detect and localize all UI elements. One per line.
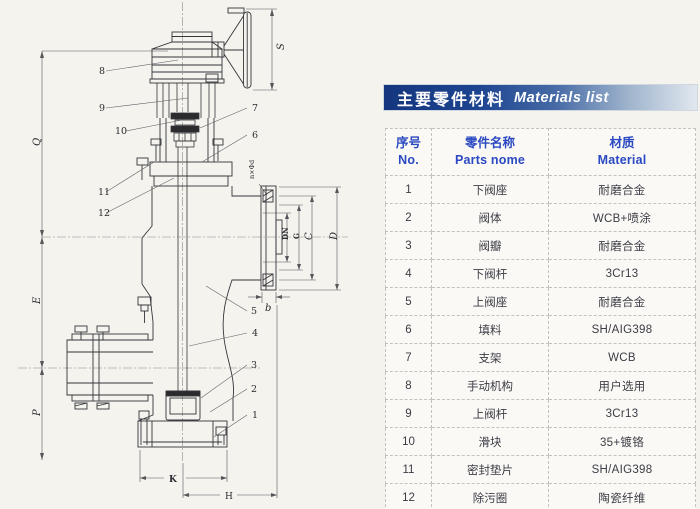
cell-part: 上阀座 [432, 288, 549, 316]
section-title-zh: 主要零件材料 [397, 86, 505, 110]
cell-material: 耐磨合金 [549, 232, 696, 260]
cell-no: 12 [386, 484, 432, 509]
cell-no: 3 [386, 232, 432, 260]
header-no-en: No. [386, 152, 431, 169]
dim-Q: Q [32, 138, 43, 146]
table-row: 6填料SH/AIG398 [386, 316, 696, 344]
cell-no: 4 [386, 260, 432, 288]
cell-part: 下阀杆 [432, 260, 549, 288]
cell-material: SH/AIG398 [549, 316, 696, 344]
cell-material: WCB+喷涂 [549, 204, 696, 232]
callout-7: 7 [252, 103, 258, 114]
dim-S: S [276, 43, 287, 50]
header-no-zh: 序号 [386, 135, 431, 152]
dim-G: G [292, 233, 301, 239]
table-row: 9上阀杆3Cr13 [386, 400, 696, 428]
valve-body-drawing [138, 186, 282, 421]
cell-no: 6 [386, 316, 432, 344]
callout-12: 12 [98, 208, 110, 219]
header-part-en: Parts nome [432, 152, 548, 169]
callout-9: 9 [99, 103, 105, 114]
header-no: 序号 No. [386, 129, 432, 176]
cell-part: 填料 [432, 316, 549, 344]
cell-material: SH/AIG398 [549, 456, 696, 484]
valve-technical-drawing: 8 9 10 11 12 7 6 5 4 3 2 1 Q E P S DN G … [0, 0, 380, 509]
dimension-lines [42, 9, 341, 498]
cell-part: 下阀座 [432, 176, 549, 204]
cell-part: 阀体 [432, 204, 549, 232]
cell-material: 耐磨合金 [549, 288, 696, 316]
cell-part: 手动机构 [432, 372, 549, 400]
dimension-labels: Q E P S DN G C D b K H n×Φd [32, 43, 340, 502]
cell-part: 滑块 [432, 428, 549, 456]
actuator-housing-drawing [150, 32, 224, 83]
cell-material: 陶瓷纤维 [549, 484, 696, 509]
dim-H: H [225, 492, 233, 502]
table-row: 4下阀杆3Cr13 [386, 260, 696, 288]
dim-D: D [329, 232, 340, 241]
header-part: 零件名称 Parts nome [432, 129, 549, 176]
section-title-bar: 主要零件材料 Materials list [383, 84, 698, 111]
dim-DN: DN [281, 227, 290, 240]
left-branch-drawing [67, 326, 153, 421]
cell-part: 阀瓣 [432, 232, 549, 260]
dimension-arrowheads [40, 9, 339, 497]
table-row: 7支架WCB [386, 344, 696, 372]
dim-P: P [32, 409, 43, 417]
catalog-page: 8 9 10 11 12 7 6 5 4 3 2 1 Q E P S DN G … [0, 0, 700, 509]
table-row: 11密封垫片SH/AIG398 [386, 456, 696, 484]
cell-part: 支架 [432, 344, 549, 372]
callout-6: 6 [252, 130, 258, 141]
cell-no: 11 [386, 456, 432, 484]
cell-material: 3Cr13 [549, 400, 696, 428]
table-row: 3阀瓣耐磨合金 [386, 232, 696, 260]
callout-11: 11 [98, 187, 110, 198]
table-row: 5上阀座耐磨合金 [386, 288, 696, 316]
cell-material: 3Cr13 [549, 260, 696, 288]
section-title-en: Materials list [514, 90, 609, 106]
header-part-zh: 零件名称 [432, 135, 548, 152]
callout-8: 8 [99, 66, 105, 77]
cell-part: 密封垫片 [432, 456, 549, 484]
dim-b: b [265, 303, 271, 314]
table-header-row: 序号 No. 零件名称 Parts nome 材质 Material [386, 129, 696, 176]
cell-material: 耐磨合金 [549, 176, 696, 204]
cell-no: 7 [386, 344, 432, 372]
callout-4: 4 [252, 328, 258, 339]
cell-no: 8 [386, 372, 432, 400]
table-row: 1下阀座耐磨合金 [386, 176, 696, 204]
callout-2: 2 [251, 384, 257, 395]
dim-E: E [32, 296, 43, 305]
cell-part: 除污圈 [432, 484, 549, 509]
cell-material: 用户选用 [549, 372, 696, 400]
callout-3: 3 [251, 360, 257, 371]
callout-5: 5 [251, 306, 257, 317]
cell-no: 2 [386, 204, 432, 232]
dim-K: K [169, 475, 178, 485]
table-row: 8手动机构用户选用 [386, 372, 696, 400]
table-row: 10滑块35+镀铬 [386, 428, 696, 456]
header-material: 材质 Material [549, 129, 696, 176]
header-material-zh: 材质 [549, 135, 695, 152]
cell-no: 9 [386, 400, 432, 428]
callout-1: 1 [252, 410, 258, 421]
materials-table: 序号 No. 零件名称 Parts nome 材质 Material 1下阀座耐… [385, 128, 696, 509]
cell-no: 1 [386, 176, 432, 204]
cell-no: 10 [386, 428, 432, 456]
table-row: 12除污圈陶瓷纤维 [386, 484, 696, 509]
cell-no: 5 [386, 288, 432, 316]
callout-10: 10 [115, 126, 127, 137]
dim-C: C [304, 232, 315, 240]
header-material-en: Material [549, 152, 695, 169]
cell-material: 35+镀铬 [549, 428, 696, 456]
cell-material: WCB [549, 344, 696, 372]
dim-bolt-note: n×Φd [248, 160, 256, 179]
table-row: 2阀体WCB+喷涂 [386, 204, 696, 232]
cell-part: 上阀杆 [432, 400, 549, 428]
